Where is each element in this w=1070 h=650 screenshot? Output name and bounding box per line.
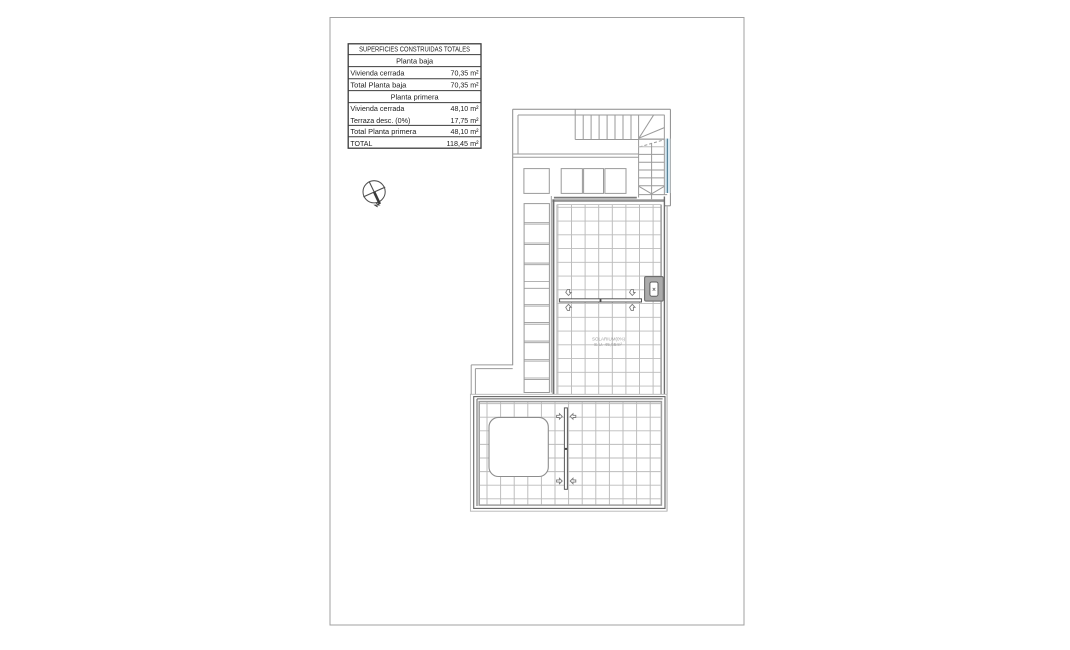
svg-text:SOLARIUM(0%): SOLARIUM(0%): [592, 337, 625, 343]
svg-text:118,45 m²: 118,45 m²: [447, 139, 479, 148]
svg-text:70,35 m²: 70,35 m²: [451, 80, 479, 89]
svg-text:SUPERFICIES CONSTRUIDAS TOTALE: SUPERFICIES CONSTRUIDAS TOTALES: [359, 45, 470, 54]
svg-text:48,10 m²: 48,10 m²: [451, 104, 479, 113]
svg-text:Planta primera: Planta primera: [391, 92, 440, 101]
svg-text:17,75 m²: 17,75 m²: [451, 116, 479, 125]
svg-text:Total Planta primera: Total Planta primera: [350, 127, 417, 136]
svg-text:TOTAL: TOTAL: [350, 139, 372, 148]
svg-text:Terraza desc. (0%): Terraza desc. (0%): [350, 116, 410, 125]
svg-text:48,10 m²: 48,10 m²: [451, 127, 479, 136]
svg-text:S.U. 45,55m²: S.U. 45,55m²: [594, 342, 622, 348]
svg-text:Vivienda cerrada: Vivienda cerrada: [350, 69, 405, 78]
svg-text:70,35 m²: 70,35 m²: [451, 69, 479, 78]
svg-text:Total Planta baja: Total Planta baja: [350, 80, 407, 89]
svg-text:Planta baja: Planta baja: [396, 56, 434, 65]
svg-text:Vivienda cerrada: Vivienda cerrada: [350, 104, 405, 113]
